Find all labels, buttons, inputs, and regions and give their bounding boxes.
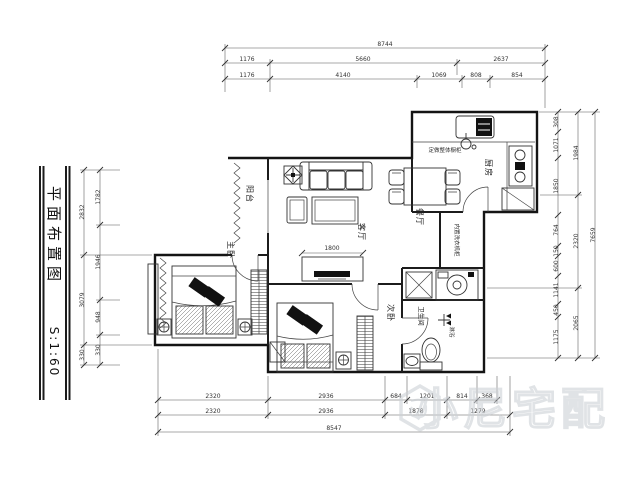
dim: 2832	[79, 204, 86, 219]
drawing-scale: S:1:60	[47, 327, 61, 378]
dim: 1071	[553, 137, 560, 152]
kitchen-door	[463, 187, 488, 212]
tv-cabinet: 1800	[299, 245, 366, 281]
dining-chair	[389, 189, 404, 204]
dim: 2320	[205, 393, 220, 400]
bath-sink	[404, 354, 420, 368]
shower-label: 淋浴	[448, 326, 456, 338]
stove	[509, 146, 532, 186]
dim: 1069	[431, 72, 446, 79]
dim: 330	[95, 344, 102, 356]
dim: 150	[553, 245, 560, 257]
second-label: 次卧	[386, 304, 396, 322]
washer-cabinet-note: 内置洗衣机柜	[453, 223, 461, 257]
kitchen-label: 厨房	[484, 159, 494, 177]
dim: 2936	[318, 408, 333, 415]
dim: 3079	[79, 292, 86, 307]
title-block: 平面布置图 S:1:60	[40, 166, 70, 400]
dims-left: 2832 3079 330 1782 1946 948 330	[79, 167, 152, 368]
dining-chair	[445, 170, 460, 185]
dining-room: 餐厅	[389, 168, 460, 226]
second-nightstand	[336, 352, 351, 369]
dim: 2936	[318, 393, 333, 400]
balcony-curtain	[234, 163, 240, 243]
dim-top-overall: 8744	[377, 41, 392, 48]
drawing-title: 平面布置图	[45, 186, 63, 286]
floorplan-canvas: 平面布置图 S:1:60 阳台	[0, 0, 640, 478]
kitchen-cabinet-note: 定做整体橱柜	[428, 146, 462, 154]
dim: 5660	[355, 56, 370, 63]
kitchen-sink	[456, 116, 494, 149]
washing-machine	[436, 270, 478, 300]
dim-bottom-overall: 8547	[326, 425, 341, 432]
bathroom: 淋浴 卫生间	[404, 306, 456, 370]
dim: 1946	[95, 254, 102, 269]
dim: 600	[553, 260, 560, 272]
master-label: 主卧	[226, 241, 236, 259]
bath-label: 卫生间	[417, 306, 426, 326]
watermark: 小尼宅配	[401, 384, 610, 435]
dining-chair	[445, 189, 460, 204]
dim: 1984	[573, 145, 580, 160]
shoe-cabinet	[406, 272, 432, 298]
tv	[314, 271, 350, 277]
dining-chair	[389, 170, 404, 185]
dim: 450	[553, 304, 560, 316]
dining-label: 餐厅	[415, 208, 424, 226]
dim: 1176	[239, 72, 254, 79]
bay-window	[148, 264, 158, 334]
second-bedroom-door	[352, 284, 378, 310]
dim: 308	[553, 116, 560, 128]
master-nightstand-right	[238, 319, 252, 335]
shower-symbol	[438, 314, 451, 327]
dim: 764	[553, 224, 560, 236]
floorplan-drawing: 平面布置图 S:1:60 阳台	[0, 0, 640, 478]
master-bed	[172, 266, 236, 338]
dim: 1782	[95, 189, 102, 204]
dining-table	[404, 168, 446, 205]
dims-top: 8744 1176 5660 2637 1176 4140 1069 808 8…	[222, 41, 548, 108]
second-bedroom: 次卧	[270, 303, 396, 372]
dim: 2637	[493, 56, 508, 63]
dim: 948	[95, 311, 102, 323]
dim: 1850	[553, 178, 560, 193]
living-room: 1800 客厅	[284, 162, 372, 281]
coffee-table	[312, 197, 358, 224]
living-label: 客厅	[357, 223, 367, 241]
master-curtain	[160, 258, 166, 328]
dims-right: 308 1071 1850 764 150 600 1141 450 1175 …	[487, 109, 600, 361]
balcony: 阳台	[234, 163, 255, 243]
kitchen: 定做整体橱柜 厨房	[412, 116, 535, 210]
sofa	[300, 162, 372, 190]
watermark-text: 小尼宅配	[414, 384, 610, 435]
dim: 1141	[553, 282, 560, 297]
dim: 1175	[553, 329, 560, 344]
dim: 1176	[239, 56, 254, 63]
dim: 330	[79, 349, 86, 361]
dim: 2320	[573, 233, 580, 248]
side-table	[287, 197, 307, 223]
tv-cabinet-dim: 1800	[324, 245, 339, 252]
dim-right-overall: 7659	[590, 227, 597, 242]
toilet	[420, 338, 442, 370]
dim: 854	[511, 72, 523, 79]
balcony-label: 阳台	[245, 185, 255, 203]
dim: 2065	[573, 315, 580, 330]
dim: 808	[470, 72, 482, 79]
dim: 2320	[205, 408, 220, 415]
dim: 4140	[335, 72, 350, 79]
utility: 内置洗衣机柜	[406, 223, 478, 300]
plant	[284, 166, 302, 184]
